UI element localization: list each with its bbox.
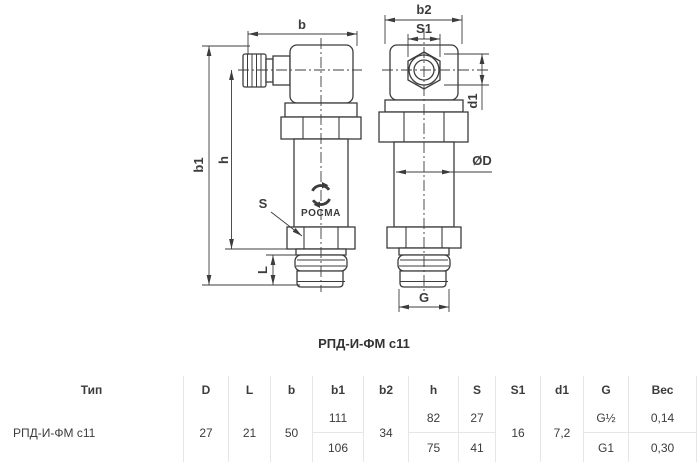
column-header: d1 [541,376,583,404]
column-header: S1 [496,376,540,404]
dim-label-b: b [298,17,306,32]
column-d1: d1 7,2 [540,376,583,462]
cell-b: 50 [271,404,312,462]
cell-D: 27 [184,404,228,462]
cell-h-bottom: 75 [409,433,458,462]
column-S: S 27 41 [458,376,495,462]
dim-label-b2: b2 [416,2,431,17]
column-type: Тип РПД-И-ФМ с11 [0,376,183,462]
cell-d1: 7,2 [541,404,583,462]
column-header: b2 [364,376,408,404]
column-header: b1 [313,376,363,404]
dim-label-h: h [216,156,231,164]
column-header: D [184,376,228,404]
column-header: b [271,376,312,404]
cell-L: 21 [229,404,270,462]
connector-housing [290,45,353,103]
cable-gland-cap [243,54,266,87]
cell-G-top: G½ [584,404,628,433]
sensor-drawing: РОСМА b b1 h L S [0,0,700,370]
dim-label-b1: b1 [191,157,206,172]
column-b1: b1 111 106 [312,376,363,462]
column-G: G G½ G1 [583,376,628,462]
dim-label-S1: S1 [416,21,432,36]
column-header: S [459,376,495,404]
cell-ves-top: 0,14 [629,404,696,433]
cable-gland-nut [273,56,290,85]
column-b2: b2 34 [363,376,408,462]
column-S1: S1 16 [495,376,540,462]
column-L: L 21 [228,376,270,462]
cell-b2: 34 [364,404,408,462]
dim-label-G: G [419,290,429,305]
cell-h-top: 82 [409,404,458,433]
column-D: D 27 [183,376,228,462]
dim-label-d1: d1 [465,93,480,108]
cell-S-top: 27 [459,404,495,433]
column-header: Тип [0,376,183,404]
thread-end-side [400,271,446,287]
column-header: L [229,376,270,404]
dim-label-S: S [259,196,268,211]
front-view [243,45,361,287]
cell-ves-bottom: 0,30 [629,433,696,462]
thread-end [297,271,343,287]
cell-b1-top: 111 [313,404,363,433]
column-ves: Вес 0,14 0,30 [628,376,697,462]
dimensions-table: Тип РПД-И-ФМ с11 D 27 L 21 b 50 b1 [0,376,697,462]
dim-label-L: L [255,266,270,274]
dim-label-OD: ØD [472,153,492,168]
cell-type: РПД-И-ФМ с11 [0,404,183,462]
technical-drawing-page: РОСМА b b1 h L S [0,0,700,473]
cell-S-bottom: 41 [459,433,495,462]
column-b: b 50 [270,376,312,462]
column-header: h [409,376,458,404]
cell-b1-bottom: 106 [313,433,363,462]
cable-gland-ring [266,59,273,82]
column-h: h 82 75 [408,376,458,462]
figure-caption: РПД-И-ФМ с11 [318,336,410,351]
side-view [379,45,468,287]
column-header: Вес [629,376,696,404]
upper-hex-side [379,112,468,142]
column-header: G [584,376,628,404]
cell-G-bottom: G1 [584,433,628,462]
cell-S1: 16 [496,404,540,462]
